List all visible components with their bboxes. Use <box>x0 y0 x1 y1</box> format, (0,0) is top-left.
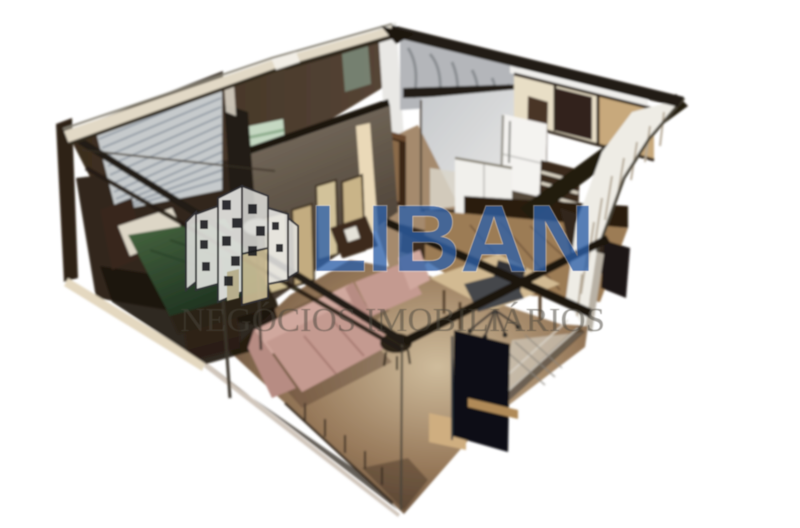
svg-text:LIBAN: LIBAN <box>310 186 595 292</box>
svg-text:NEGÓCIOS IMOBILIÁRIOS: NEGÓCIOS IMOBILIÁRIOS <box>180 301 605 339</box>
